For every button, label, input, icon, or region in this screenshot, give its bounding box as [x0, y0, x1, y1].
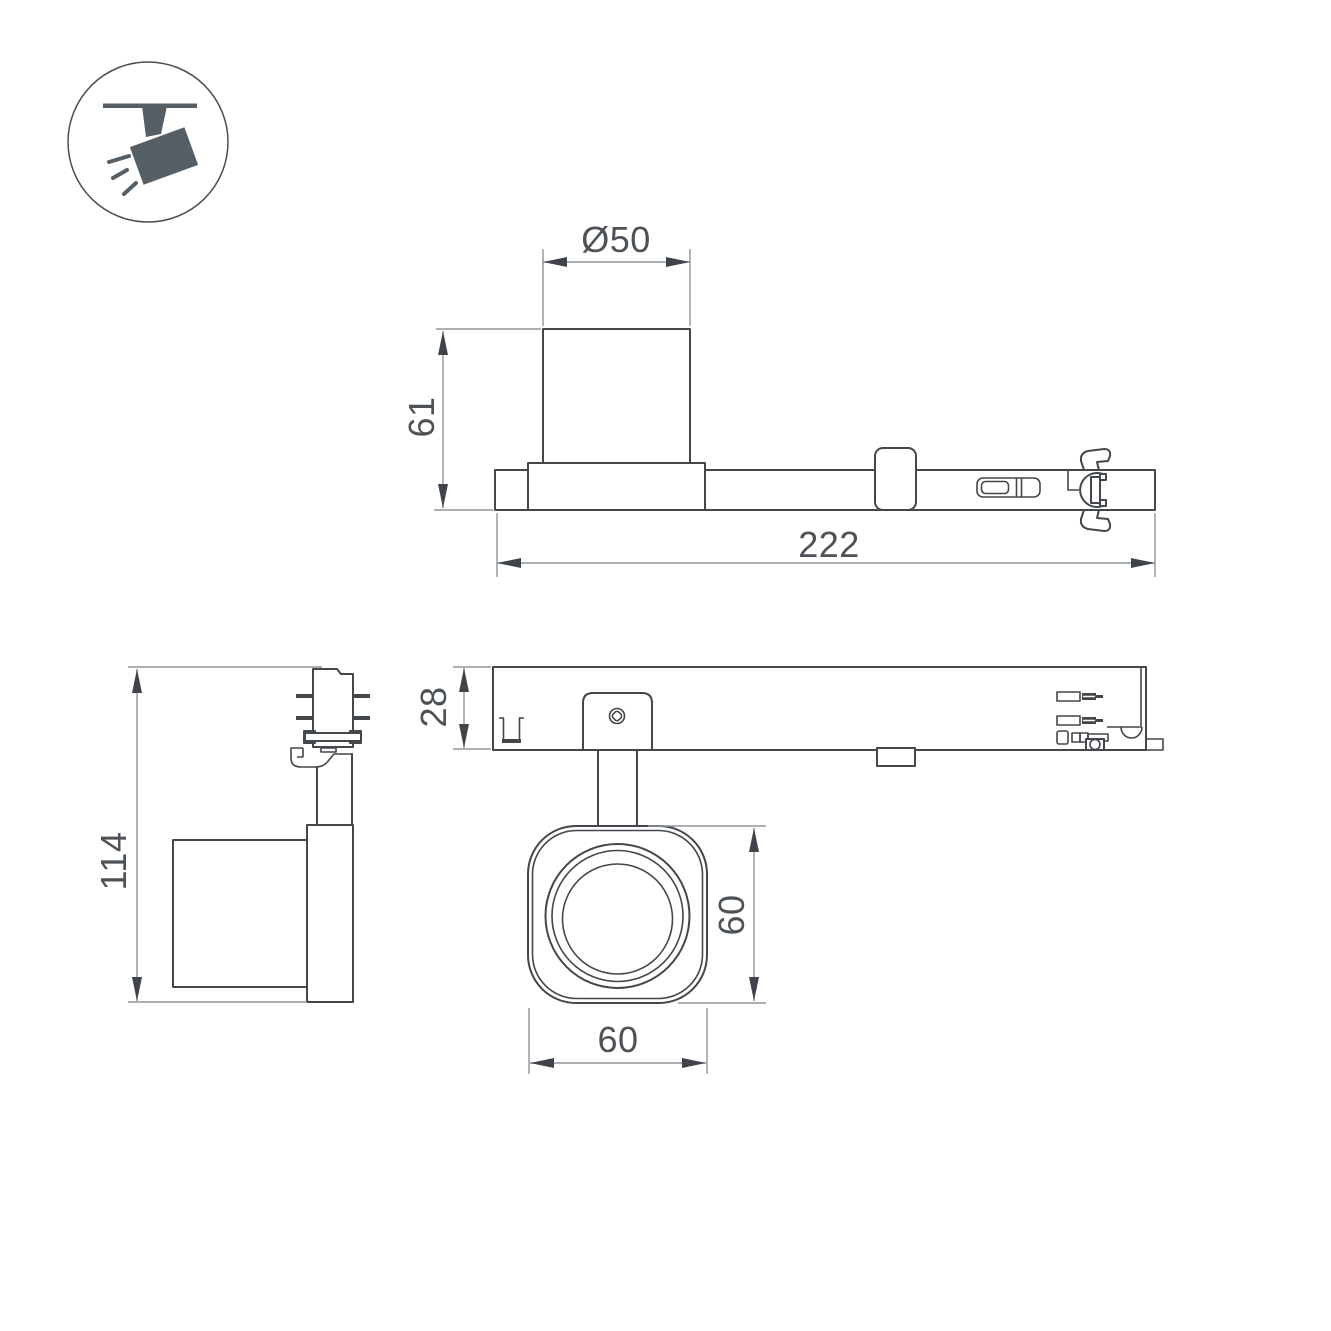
dim-label-track-depth: 28	[413, 686, 454, 727]
dim-label-lens-diameter: Ø50	[581, 219, 651, 260]
bottom-view: 28 60 60	[413, 667, 1163, 1074]
side-view: Ø50 61 222	[401, 219, 1155, 577]
dim-head-width: 60	[529, 1008, 707, 1074]
dim-total-length: 222	[497, 513, 1155, 577]
technical-drawing: Ø50 61 222	[0, 0, 1331, 1331]
lamp-body	[173, 840, 307, 987]
yoke-arm	[307, 825, 353, 1002]
mounting-plate	[583, 693, 652, 750]
lamp-head	[528, 826, 707, 1003]
base-plate	[528, 463, 705, 510]
front-view: 114	[93, 667, 370, 1002]
cylinder-body	[543, 329, 690, 463]
dim-label-overall-height: 114	[93, 832, 134, 891]
dim-track-depth: 28	[413, 667, 491, 749]
dim-label-body-height: 61	[401, 396, 442, 437]
dim-label-head-width: 60	[597, 1019, 638, 1060]
dim-label-head-height: 60	[711, 894, 752, 935]
dim-label-total-length: 222	[798, 524, 860, 565]
legend-icon	[68, 62, 228, 222]
adapter-block	[875, 448, 916, 510]
adapter-hook	[291, 748, 352, 767]
stem	[317, 754, 352, 825]
drawing-canvas: Ø50 61 222	[0, 0, 1331, 1331]
stem-bottom	[598, 750, 637, 826]
end-tab	[1146, 739, 1163, 750]
hanging-tab	[877, 748, 915, 766]
adapter-flange	[304, 731, 361, 743]
dim-lens-diameter: Ø50	[543, 219, 690, 326]
end-latch	[1068, 449, 1110, 531]
